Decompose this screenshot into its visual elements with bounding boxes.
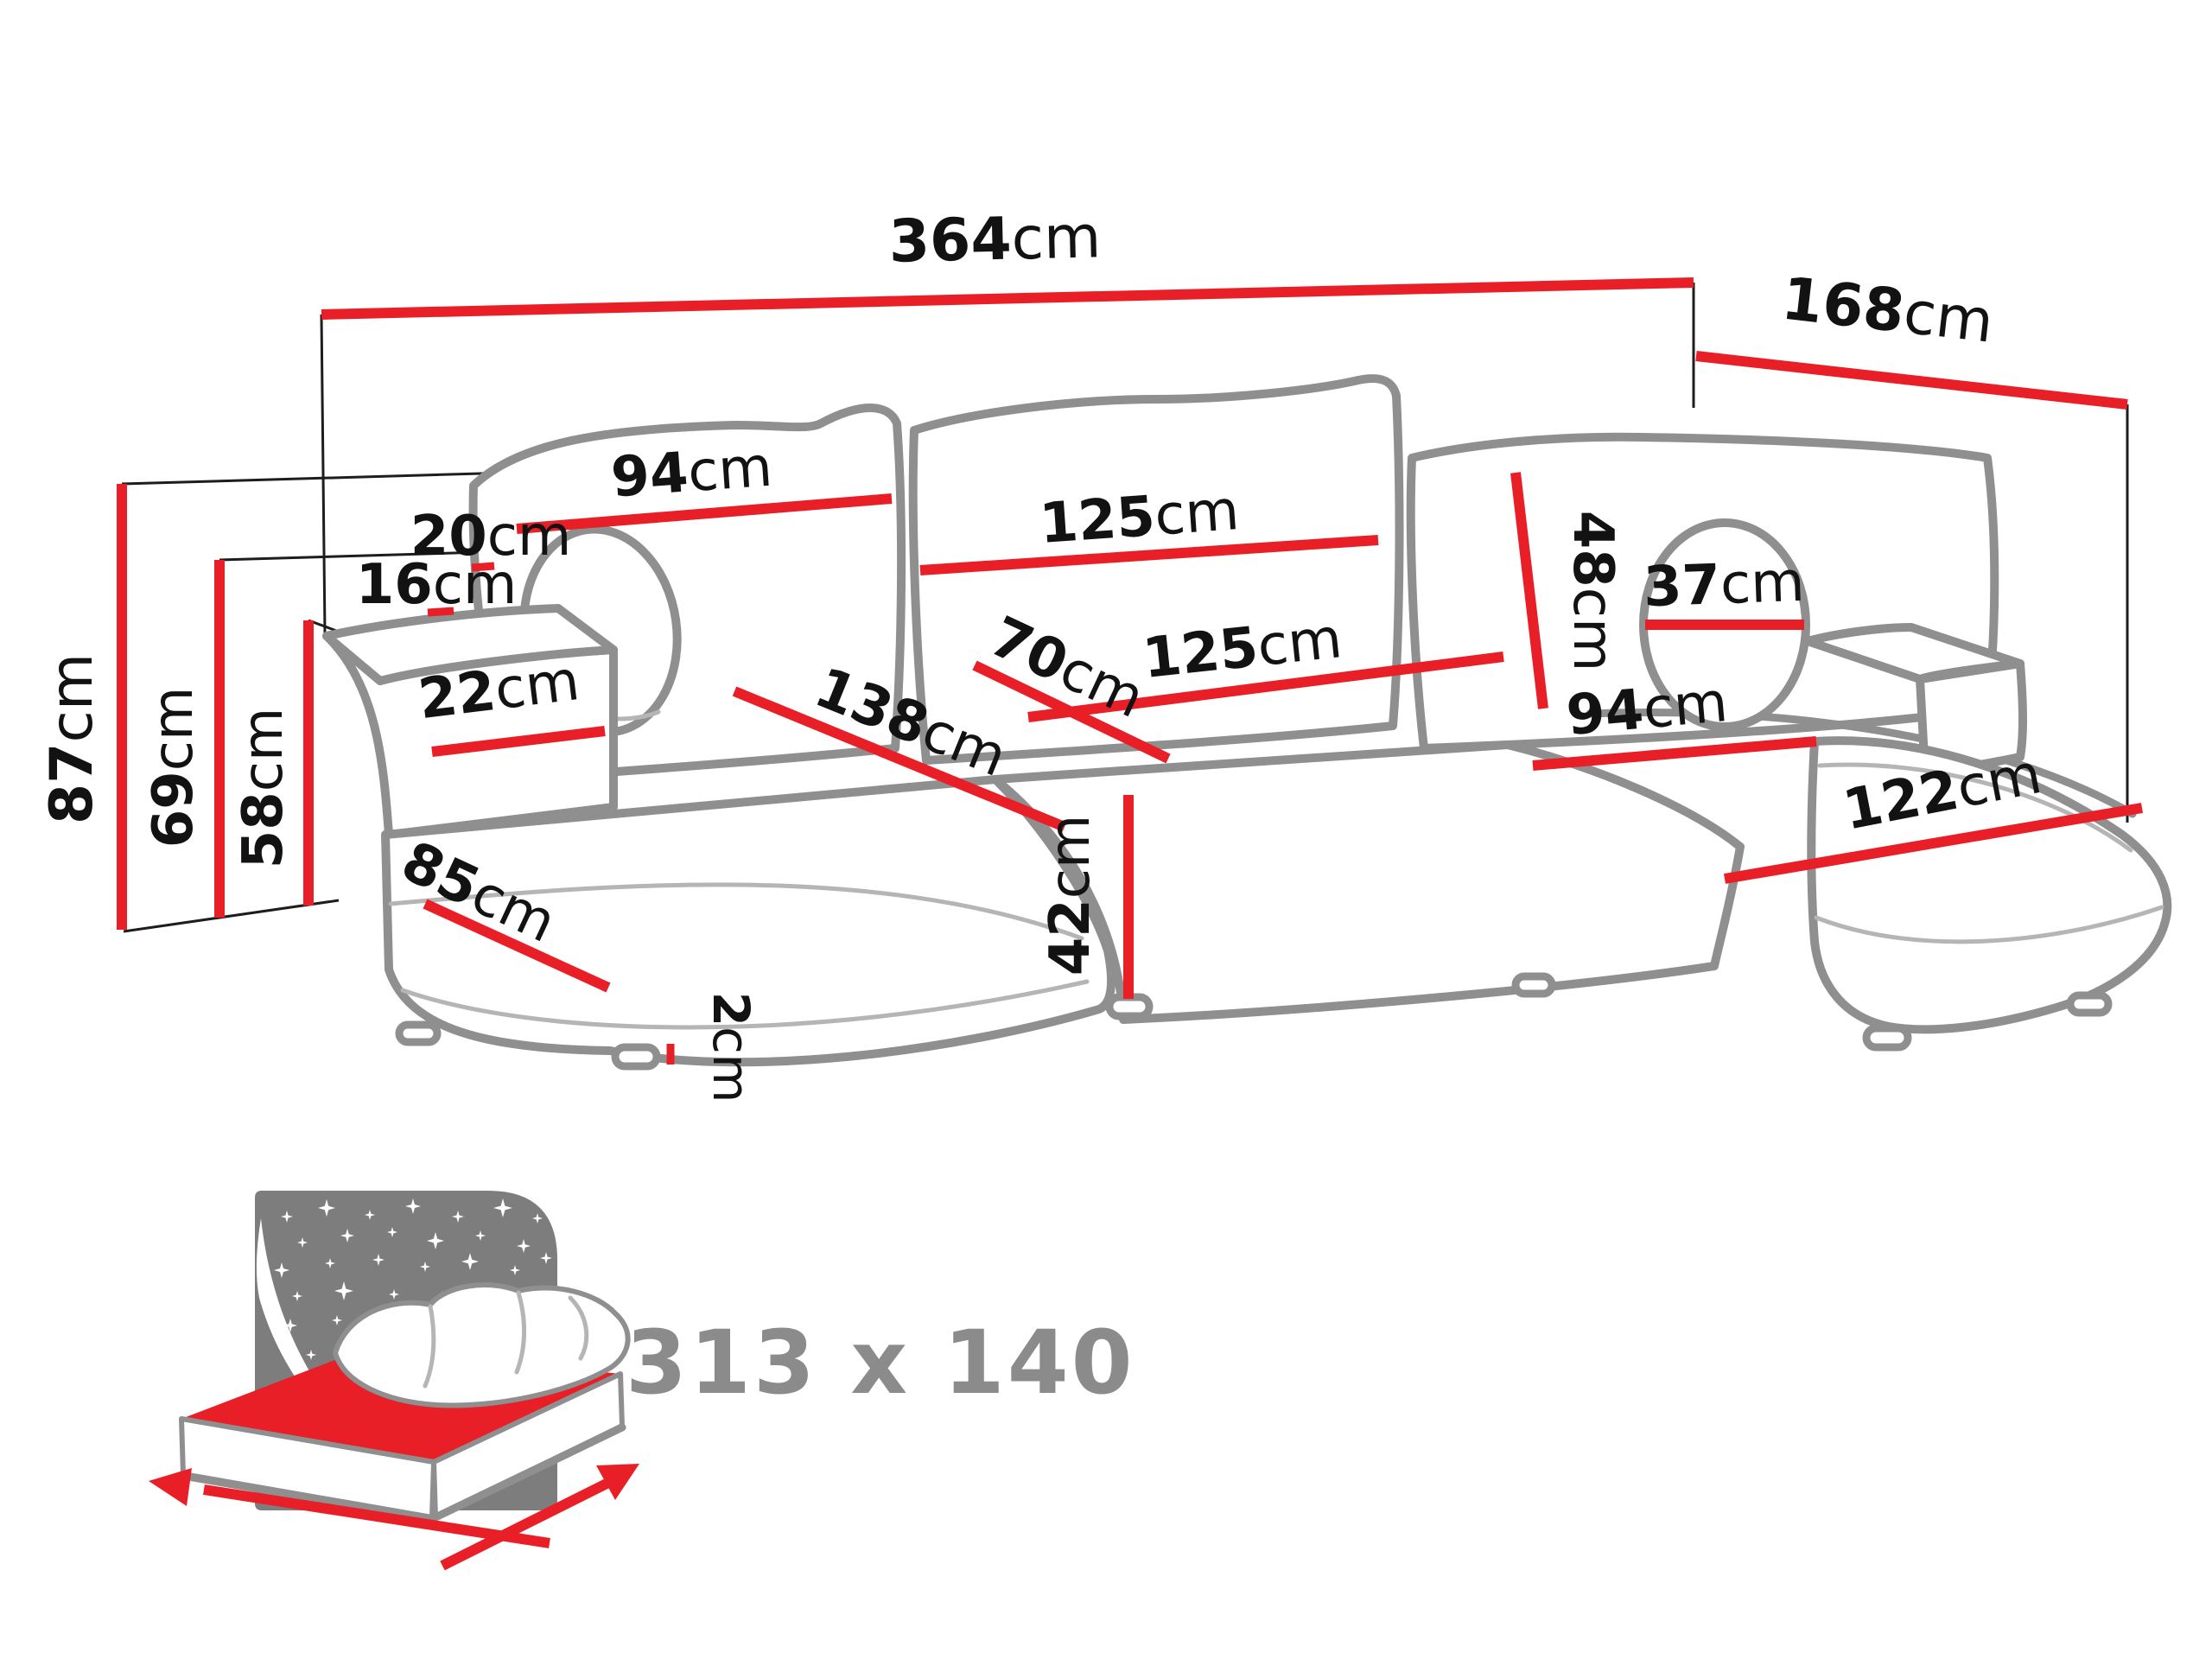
- label-leg-height: 2cm: [702, 992, 760, 1103]
- diagram-stage: 364cm 168cm 94cm 125cm 20cm 16cm 48cm 37…: [0, 0, 2212, 1659]
- dim-line-total-width: [321, 283, 1694, 315]
- label-pillow-gap-lower: 16cm: [356, 553, 518, 617]
- foot: [1516, 976, 1552, 994]
- foot: [2070, 995, 2108, 1013]
- label-armrest-height: 58cm: [232, 708, 296, 869]
- label-bolster-diameter: 37cm: [1643, 550, 1806, 620]
- sofa-dimension-diagram: 364cm 168cm 94cm 125cm 20cm 16cm 48cm 37…: [0, 0, 2212, 1659]
- label-backrest-right-height: 48cm: [1560, 511, 1624, 672]
- label-seat-height: 42cm: [1039, 815, 1103, 976]
- foot: [1109, 997, 1149, 1016]
- dim-line-total-depth: [1696, 356, 2127, 404]
- foot: [1866, 1028, 1908, 1047]
- sofa: [327, 378, 2167, 1066]
- label-total-depth: 168cm: [1778, 264, 1997, 356]
- label-total-height: 87cm: [38, 653, 106, 824]
- sleeping-area-size: 313 x 140: [626, 1312, 1135, 1414]
- guide-vertical-left: [321, 315, 325, 633]
- label-backrest-left-width: 94cm: [609, 435, 774, 511]
- foot: [399, 1025, 437, 1042]
- label-total-width: 364cm: [888, 203, 1102, 276]
- label-backrest-height: 69cm: [142, 687, 206, 849]
- foot: [615, 1047, 657, 1066]
- sleeping-area-icon: 313 x 140: [149, 1191, 1135, 1566]
